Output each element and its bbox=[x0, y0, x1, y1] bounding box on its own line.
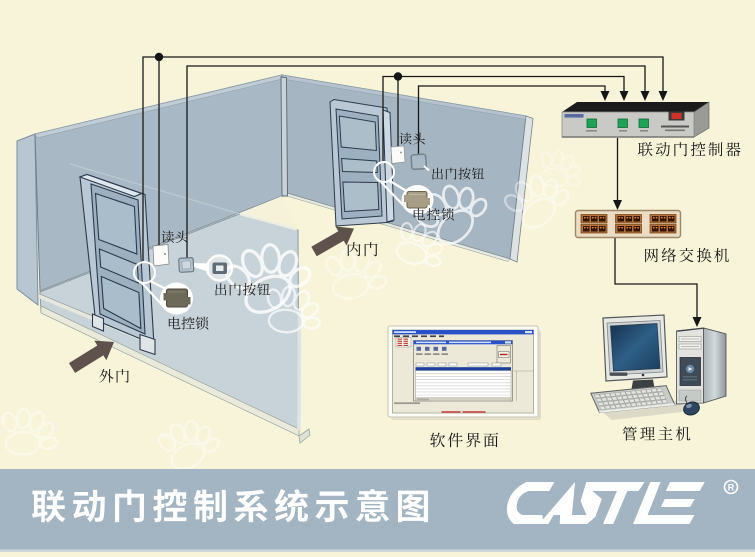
svg-text:R: R bbox=[728, 483, 735, 493]
